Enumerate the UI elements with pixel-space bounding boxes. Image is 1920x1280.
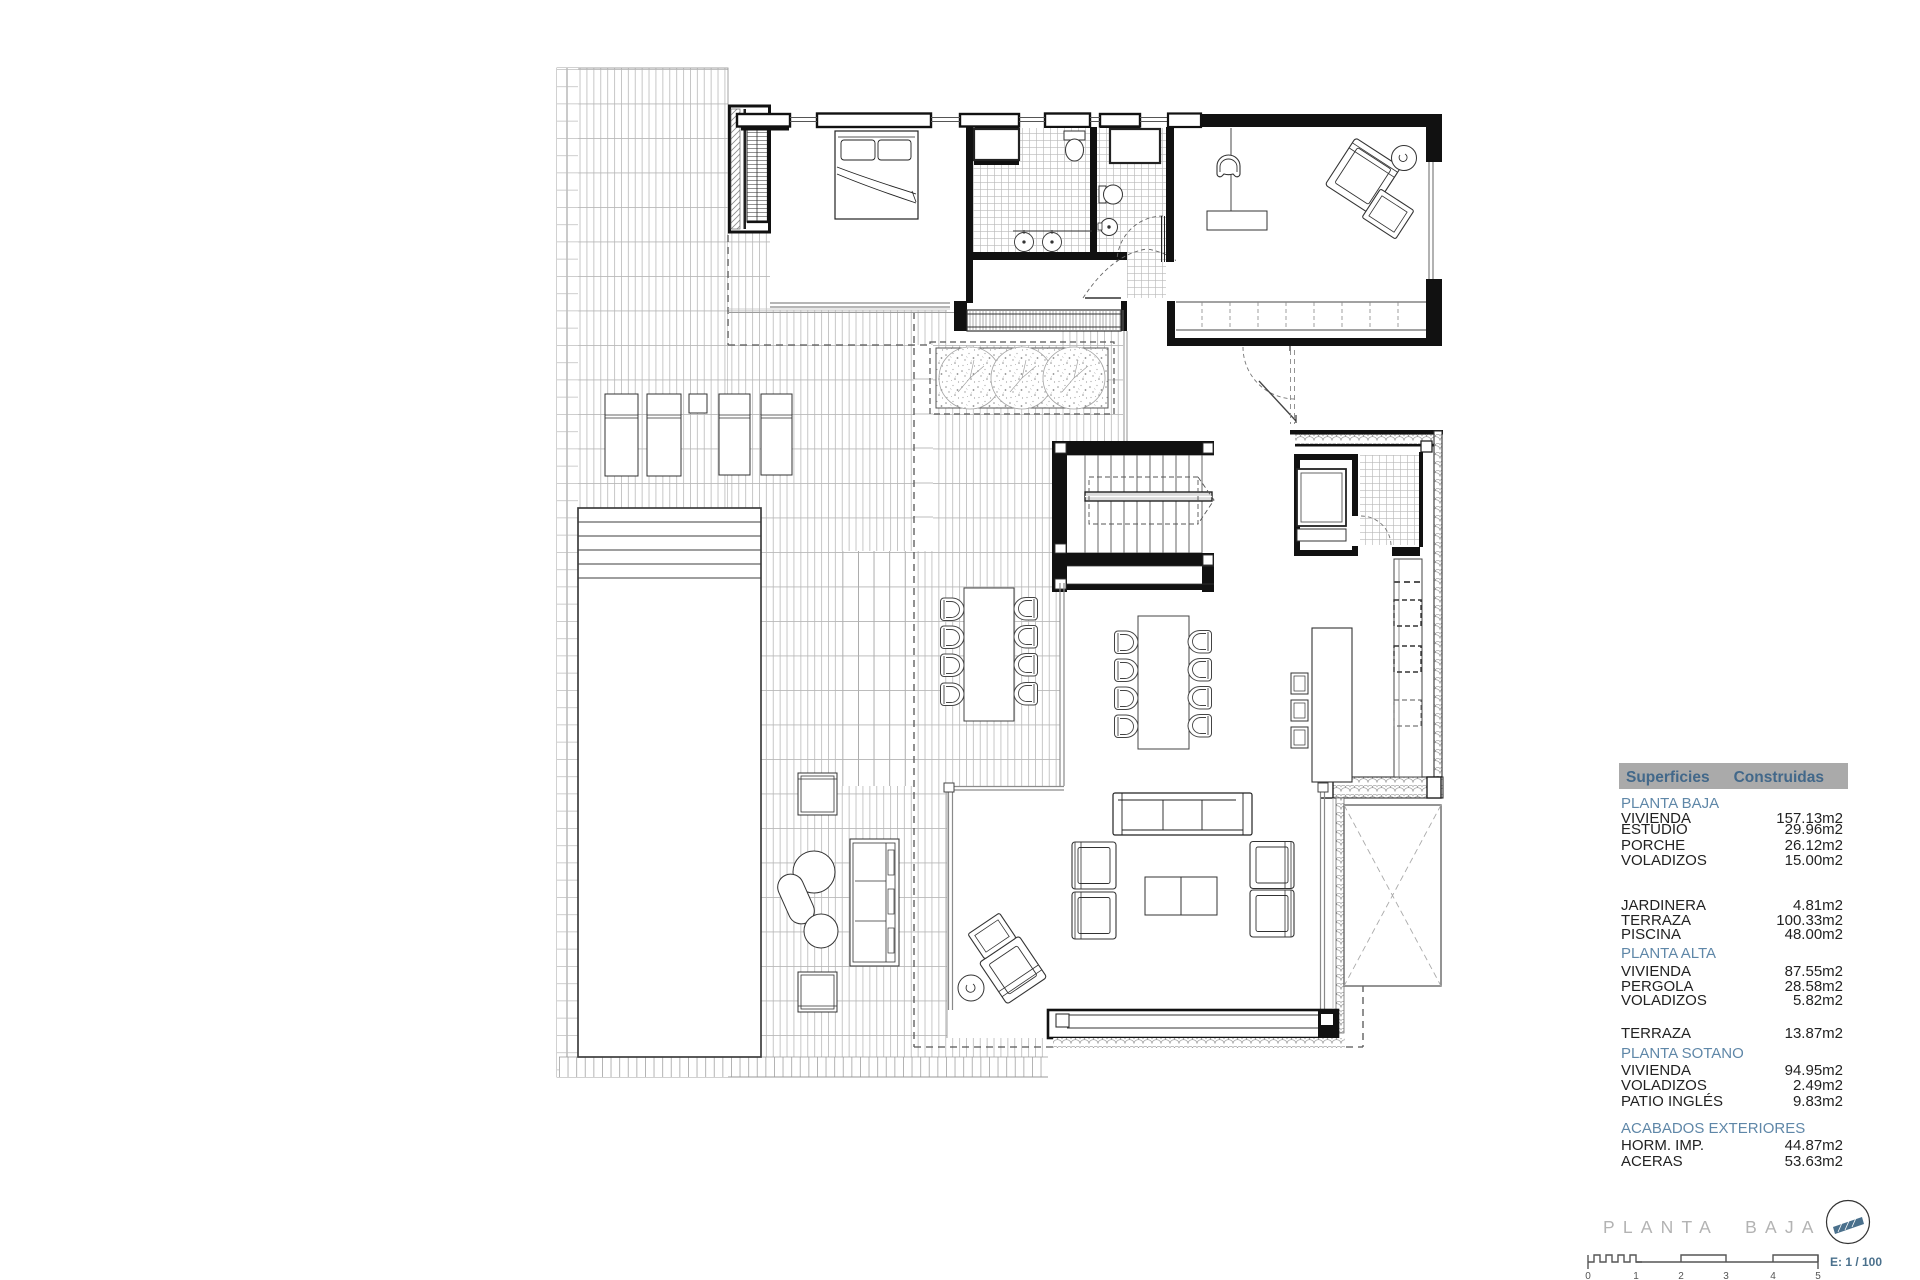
svg-text:Construidas: Construidas	[1734, 769, 1824, 786]
svg-text:5: 5	[1815, 1271, 1821, 1280]
svg-text:PLANTA BAJA: PLANTA BAJA	[1603, 1217, 1822, 1237]
svg-text:2.49m2: 2.49m2	[1793, 1077, 1843, 1094]
svg-text:15.00m2: 15.00m2	[1785, 852, 1843, 869]
svg-text:ESTUDIO: ESTUDIO	[1621, 821, 1688, 838]
svg-text:53.63m2: 53.63m2	[1785, 1153, 1843, 1170]
svg-text:5.82m2: 5.82m2	[1793, 992, 1843, 1009]
svg-text:9.83m2: 9.83m2	[1793, 1093, 1843, 1110]
svg-text:48.00m2: 48.00m2	[1785, 926, 1843, 943]
svg-text:ACABADOS EXTERIORES: ACABADOS EXTERIORES	[1621, 1120, 1805, 1137]
svg-text:PATIO INGLÉS: PATIO INGLÉS	[1621, 1093, 1723, 1110]
svg-text:Superficies: Superficies	[1626, 769, 1710, 786]
svg-text:13.87m2: 13.87m2	[1785, 1025, 1843, 1042]
svg-text:TERRAZA: TERRAZA	[1621, 1025, 1691, 1042]
svg-text:29.96m2: 29.96m2	[1785, 821, 1843, 838]
svg-text:HORM. IMP.: HORM. IMP.	[1621, 1137, 1704, 1154]
svg-text:VOLADIZOS: VOLADIZOS	[1621, 992, 1707, 1009]
svg-text:44.87m2: 44.87m2	[1785, 1137, 1843, 1154]
svg-text:0: 0	[1585, 1271, 1591, 1280]
svg-text:1: 1	[1633, 1271, 1639, 1280]
svg-text:E: 1 / 100: E: 1 / 100	[1830, 1255, 1882, 1269]
svg-text:VOLADIZOS: VOLADIZOS	[1621, 852, 1707, 869]
svg-text:PISCINA: PISCINA	[1621, 926, 1681, 943]
svg-text:ACERAS: ACERAS	[1621, 1153, 1683, 1170]
svg-text:PLANTA ALTA: PLANTA ALTA	[1621, 945, 1716, 962]
svg-text:4: 4	[1770, 1271, 1776, 1280]
svg-text:VOLADIZOS: VOLADIZOS	[1621, 1077, 1707, 1094]
svg-text:PLANTA SOTANO: PLANTA SOTANO	[1621, 1045, 1744, 1062]
svg-text:2: 2	[1678, 1271, 1684, 1280]
svg-text:3: 3	[1723, 1271, 1729, 1280]
